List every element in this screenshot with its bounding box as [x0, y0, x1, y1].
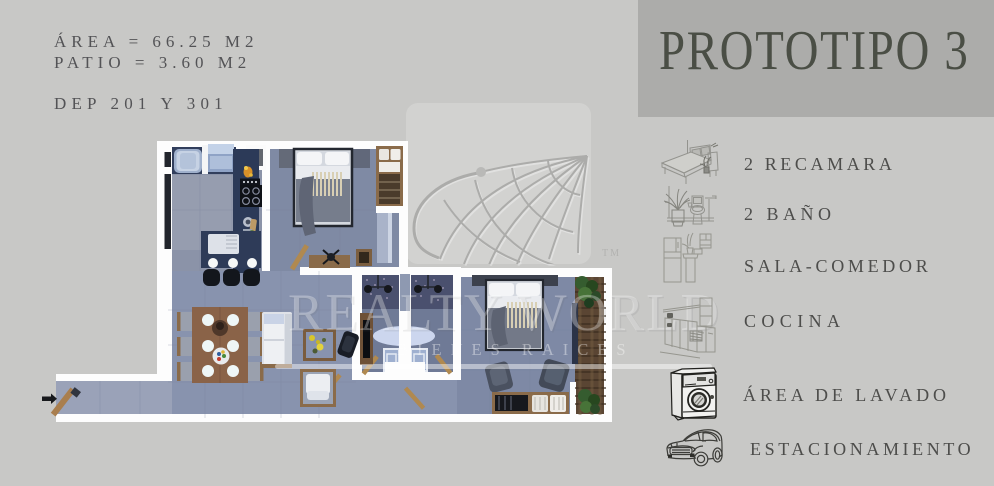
- svg-text:BIENES RAICES: BIENES RAICES: [397, 340, 635, 359]
- svg-text:REALTY WORLD: REALTY WORLD: [288, 284, 721, 342]
- svg-text:TM: TM: [602, 248, 621, 259]
